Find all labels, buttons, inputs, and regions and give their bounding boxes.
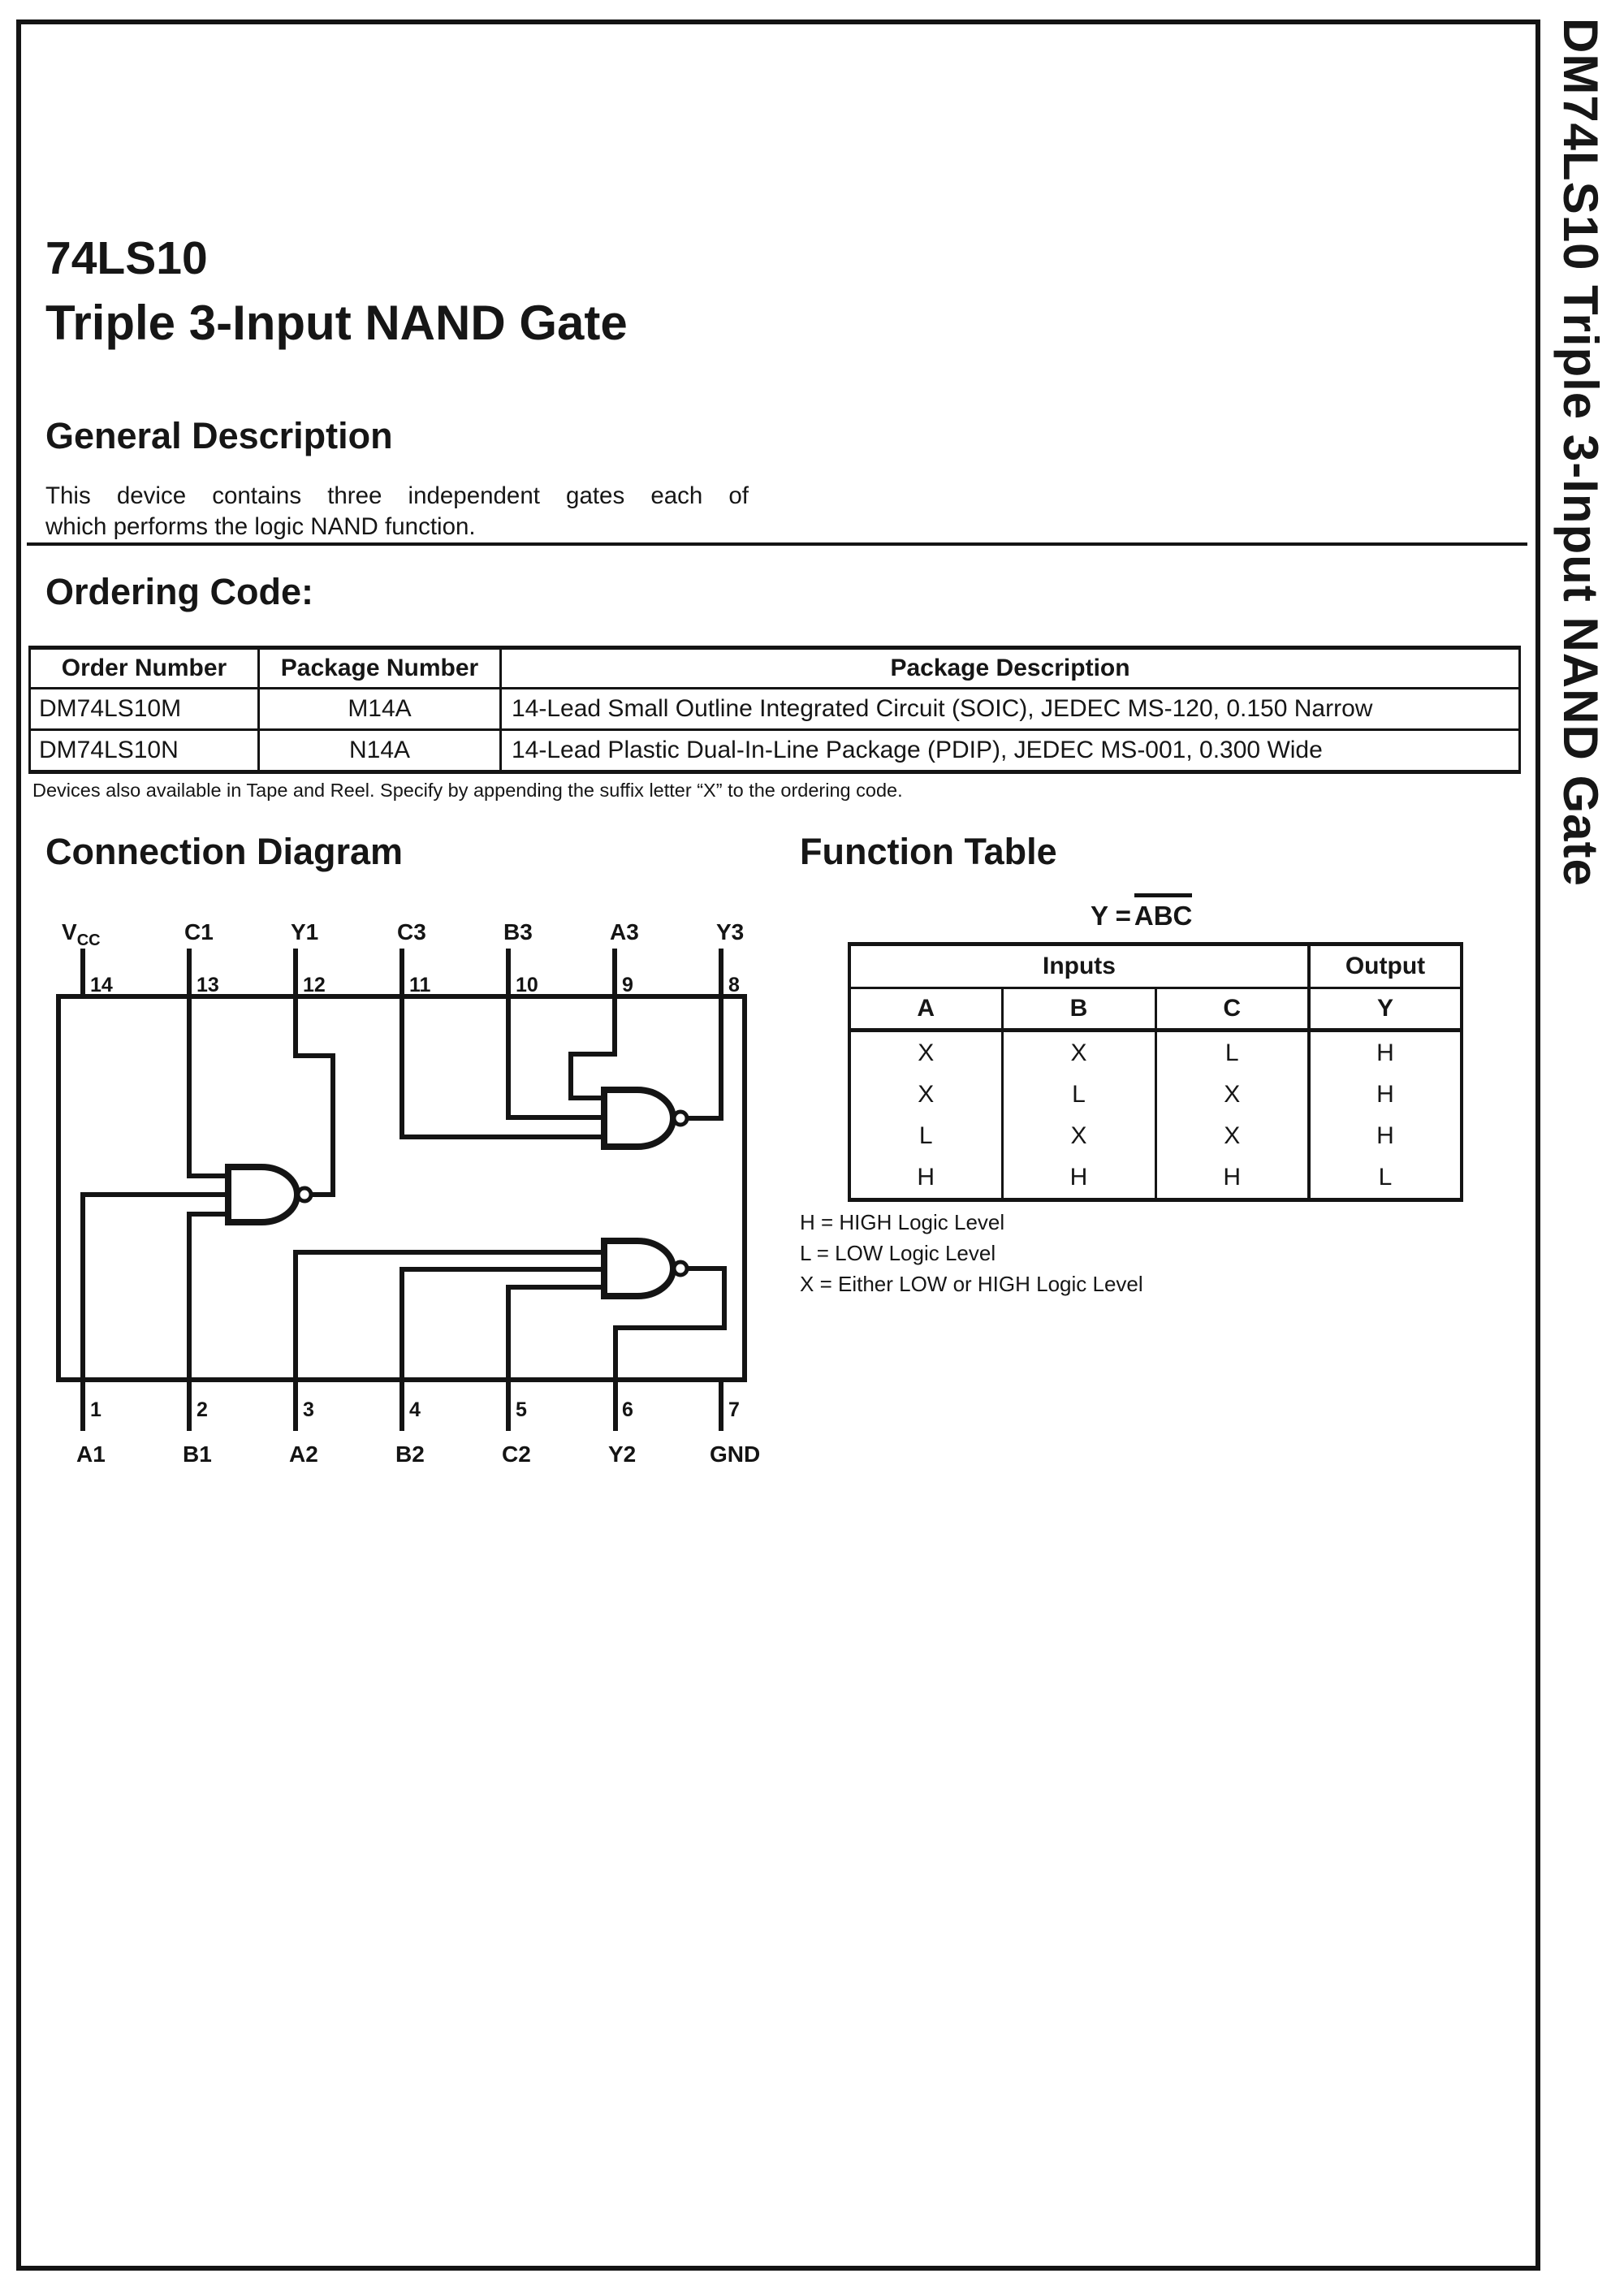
function-table: Inputs Output A B C Y XXLHXLXHLXXHHHHL [848,942,1463,1202]
wire-b2 [402,1269,602,1431]
table-cell: H [1002,1156,1155,1200]
wire-c3 [402,949,602,1137]
column-header: C [1155,988,1309,1031]
pin-label: B3 [503,919,533,944]
part-title: Triple 3-Input NAND Gate [45,299,628,348]
ordering-note: Devices also available in Tape and Reel.… [32,780,903,802]
description-line: which performs the logic NAND function. [45,512,749,542]
pin-label: Y2 [608,1441,636,1467]
pin-number: 12 [303,974,326,996]
pin-label: A1 [76,1441,106,1467]
general-description-heading: General Description [45,417,393,454]
pin-number: 3 [303,1398,314,1421]
section-divider [27,542,1527,546]
table-cell: 14-Lead Plastic Dual-In-Line Package (PD… [501,730,1520,772]
table-cell: N14A [259,730,501,772]
table-cell: L [1002,1074,1155,1115]
pin-number: 1 [90,1398,101,1421]
function-table-column-row: A B C Y [849,988,1462,1031]
pin-label: B2 [395,1441,425,1467]
table-cell: X [1002,1115,1155,1156]
table-cell: X [849,1031,1002,1074]
table-cell: X [1155,1074,1309,1115]
pin-number: 6 [622,1398,633,1421]
table-row: DM74LS10NN14A14-Lead Plastic Dual-In-Lin… [30,730,1520,772]
inverter-bubble-gate3 [674,1112,687,1125]
group-header-inputs: Inputs [849,944,1309,988]
connection-diagram-heading: Connection Diagram [45,833,403,870]
pin-number: 7 [728,1398,740,1421]
function-table-group-row: Inputs Output [849,944,1462,988]
pin-number: 2 [197,1398,208,1421]
description-line: This device contains three independent g… [45,481,749,512]
table-row: XXLH [849,1031,1462,1074]
function-table-notes: H = HIGH Logic Level L = LOW Logic Level… [800,1207,1143,1299]
function-table-body: XXLHXLXHLXXHHHHL [849,1031,1462,1200]
table-cell: L [849,1115,1002,1156]
wire-a2 [296,1252,602,1431]
logic-equation: Y =ABC [1091,893,1192,931]
group-header-output: Output [1309,944,1462,988]
column-header: A [849,988,1002,1031]
table-row: XLXH [849,1074,1462,1115]
note-line: H = HIGH Logic Level [800,1207,1143,1238]
ordering-table-body: DM74LS10MM14A14-Lead Small Outline Integ… [30,689,1520,772]
pin-number: 14 [90,974,113,996]
pin-label: Y3 [716,919,744,944]
pin-label: GND [710,1441,760,1467]
table-cell: DM74LS10M [30,689,259,730]
function-table-heading: Function Table [800,833,1057,870]
column-header: Y [1309,988,1462,1031]
datasheet-page: DM74LS10 Triple 3-Input NAND Gate 74LS10… [0,0,1624,2295]
pin-number: 13 [197,974,219,996]
table-cell: X [1155,1115,1309,1156]
general-description-body: This device contains three independent g… [45,481,749,542]
wire-y3 [689,949,721,1118]
table-cell: 14-Lead Small Outline Integrated Circuit… [501,689,1520,730]
pin-label: B1 [183,1441,212,1467]
pin-label: C2 [502,1441,531,1467]
wire-a1 [83,1195,226,1431]
table-cell: H [1309,1115,1462,1156]
nand-gate-1 [228,1167,297,1222]
column-header: Package Description [501,648,1520,689]
connection-diagram: VCC C1 Y1 C3 B3 A3 Y3 14 13 12 11 10 9 8… [32,893,763,1472]
table-cell: DM74LS10N [30,730,259,772]
table-row: HHHL [849,1156,1462,1200]
nand-gate-3 [604,1090,673,1147]
table-cell: M14A [259,689,501,730]
part-number: 74LS10 [45,236,208,282]
ordering-code-heading: Ordering Code: [45,573,313,610]
ordering-table-header-row: Order Number Package Number Package Desc… [30,648,1520,689]
pin-number: 4 [409,1398,421,1421]
pin-number: 10 [516,974,538,996]
pin-number: 5 [516,1398,527,1421]
inverter-bubble-gate1 [298,1188,311,1201]
table-cell: H [1309,1031,1462,1074]
table-cell: H [849,1156,1002,1200]
pin-number: 8 [728,974,740,996]
note-line: X = Either LOW or HIGH Logic Level [800,1269,1143,1299]
nand-gate-2 [604,1241,673,1296]
table-row: LXXH [849,1115,1462,1156]
table-cell: L [1309,1156,1462,1200]
pin-number: 11 [409,974,431,996]
equation-overlined-term: ABC [1134,893,1193,931]
note-line: L = LOW Logic Level [800,1238,1143,1269]
ordering-table: Order Number Package Number Package Desc… [28,646,1521,774]
table-row: DM74LS10MM14A14-Lead Small Outline Integ… [30,689,1520,730]
inverter-bubble-gate2 [674,1262,687,1275]
pin-label: C1 [184,919,214,944]
pin-label: C3 [397,919,426,944]
table-cell: X [1002,1031,1155,1074]
table-cell: H [1155,1156,1309,1200]
sidebar-vertical-title: DM74LS10 Triple 3-Input NAND Gate [1553,18,1609,2259]
column-header: Order Number [30,648,259,689]
pin-label-vcc: VCC [62,919,101,949]
pin-label: A2 [289,1441,318,1467]
column-header: Package Number [259,648,501,689]
equation-lhs: Y = [1091,901,1131,931]
table-cell: H [1309,1074,1462,1115]
wire-a3 [571,949,615,1098]
column-header: B [1002,988,1155,1031]
table-cell: X [849,1074,1002,1115]
table-cell: L [1155,1031,1309,1074]
pin-label: A3 [610,919,639,944]
pin-number: 9 [622,974,633,996]
pin-label: Y1 [291,919,318,944]
